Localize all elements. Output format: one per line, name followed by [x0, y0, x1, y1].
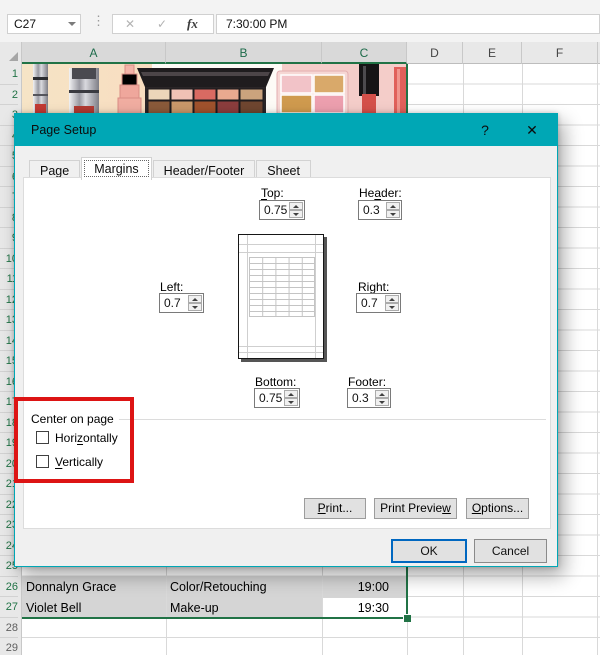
- column-header-e[interactable]: E: [463, 42, 522, 64]
- options-button[interactable]: Options...: [466, 498, 529, 519]
- footer-spin-up-icon[interactable]: [375, 390, 389, 398]
- right-spin-down-icon[interactable]: [385, 303, 399, 311]
- column-header-a[interactable]: A: [22, 42, 166, 64]
- page-setup-dialog: Page Setup ? ✕ Page Margins Header/Foote…: [14, 113, 558, 567]
- annotation-highlight-rectangle: [14, 397, 134, 483]
- formula-input[interactable]: 7:30:00 PM: [216, 14, 600, 34]
- page-preview: [238, 234, 324, 359]
- row-header-2[interactable]: 2: [0, 85, 18, 106]
- cell-a26[interactable]: Donnalyn Grace: [26, 577, 116, 597]
- bottom-label: Bottom:: [255, 375, 296, 389]
- left-spin-down-icon[interactable]: [188, 303, 202, 311]
- excel-window: C27 ⋮ ✕ ✓ fx 7:30:00 PM A B C D E F Donn…: [0, 0, 600, 655]
- footer-margin-value[interactable]: 0.3: [352, 389, 369, 407]
- formula-value: 7:30:00 PM: [226, 17, 287, 31]
- cell-c26[interactable]: 19:00: [322, 577, 389, 597]
- ok-button[interactable]: OK: [391, 539, 467, 563]
- dialog-help-icon[interactable]: ?: [467, 114, 503, 146]
- right-margin-value[interactable]: 0.7: [361, 294, 378, 312]
- dialog-title: Page Setup: [31, 114, 96, 146]
- tab-margins[interactable]: Margins: [81, 157, 151, 180]
- name-box-dropdown-icon[interactable]: [68, 22, 76, 26]
- row-header-28[interactable]: 28: [0, 618, 18, 639]
- formula-bar-handle-icon[interactable]: ⋮: [92, 13, 105, 29]
- column-header-c[interactable]: C: [322, 42, 407, 64]
- top-margin-spinner[interactable]: 0.75: [259, 200, 305, 220]
- footer-label: Footer:: [348, 375, 386, 389]
- header-spin-up-icon[interactable]: [386, 202, 400, 210]
- cell-a27[interactable]: Violet Bell: [26, 598, 81, 618]
- left-label: Left:: [160, 280, 183, 294]
- select-all-button[interactable]: [0, 42, 22, 64]
- cell-b27[interactable]: Make-up: [170, 598, 219, 618]
- row-header-26[interactable]: 26: [0, 577, 18, 598]
- preview-right-margin-line: [315, 235, 316, 358]
- right-label: Right:: [358, 280, 389, 294]
- preview-header-line: [239, 244, 323, 245]
- cell-b26[interactable]: Color/Retouching: [170, 577, 267, 597]
- bottom-spin-up-icon[interactable]: [284, 390, 298, 398]
- fill-handle[interactable]: [403, 614, 411, 622]
- row-header-1[interactable]: 1: [0, 64, 18, 85]
- selection-border-bottom: [20, 617, 409, 619]
- bottom-margin-spinner[interactable]: 0.75: [254, 388, 300, 408]
- row-header-27[interactable]: 27: [0, 597, 18, 618]
- cell-c27[interactable]: 19:30: [322, 598, 389, 618]
- column-header-b[interactable]: B: [166, 42, 322, 64]
- preview-table-grid: [249, 257, 315, 317]
- enter-entry-icon[interactable]: ✓: [157, 15, 167, 33]
- header-margin-value[interactable]: 0.3: [363, 201, 380, 219]
- left-spin-up-icon[interactable]: [188, 295, 202, 303]
- gridline-f-g: [597, 64, 598, 655]
- left-margin-value[interactable]: 0.7: [164, 294, 181, 312]
- row-header-29[interactable]: 29: [0, 638, 18, 655]
- column-header-d[interactable]: D: [407, 42, 463, 64]
- top-spin-down-icon[interactable]: [289, 210, 303, 218]
- header-spin-down-icon[interactable]: [386, 210, 400, 218]
- top-label: Top:: [261, 186, 284, 200]
- top-spin-up-icon[interactable]: [289, 202, 303, 210]
- formula-toolbar: ✕ ✓ fx: [112, 14, 214, 34]
- name-box-value: C27: [14, 17, 36, 31]
- right-spin-up-icon[interactable]: [385, 295, 399, 303]
- print-preview-button[interactable]: Print Preview: [374, 498, 457, 519]
- cancel-button[interactable]: Cancel: [474, 539, 547, 563]
- column-headers: A B C D E F: [0, 42, 600, 64]
- print-button[interactable]: Print...: [304, 498, 366, 519]
- column-header-f[interactable]: F: [522, 42, 598, 64]
- bottom-margin-value[interactable]: 0.75: [259, 389, 282, 407]
- dialog-close-icon[interactable]: ✕: [511, 114, 553, 146]
- cosmetics-image: [22, 64, 407, 115]
- preview-left-margin-line: [247, 235, 248, 358]
- bottom-spin-down-icon[interactable]: [284, 398, 298, 406]
- cancel-entry-icon[interactable]: ✕: [125, 15, 135, 33]
- right-margin-spinner[interactable]: 0.7: [356, 293, 401, 313]
- dialog-titlebar[interactable]: Page Setup ? ✕: [15, 114, 557, 146]
- top-margin-value[interactable]: 0.75: [264, 201, 287, 219]
- left-margin-spinner[interactable]: 0.7: [159, 293, 204, 313]
- insert-function-icon[interactable]: fx: [187, 15, 198, 33]
- preview-footer-line: [239, 352, 323, 353]
- formula-bar-row: C27 ⋮ ✕ ✓ fx 7:30:00 PM: [0, 0, 600, 42]
- header-margin-spinner[interactable]: 0.3: [358, 200, 402, 220]
- group-divider: [119, 419, 546, 420]
- footer-margin-spinner[interactable]: 0.3: [347, 388, 391, 408]
- preview-top-margin-line: [239, 252, 323, 253]
- header-label: Header:: [359, 186, 402, 200]
- footer-spin-down-icon[interactable]: [375, 398, 389, 406]
- preview-bottom-margin-line: [239, 346, 323, 347]
